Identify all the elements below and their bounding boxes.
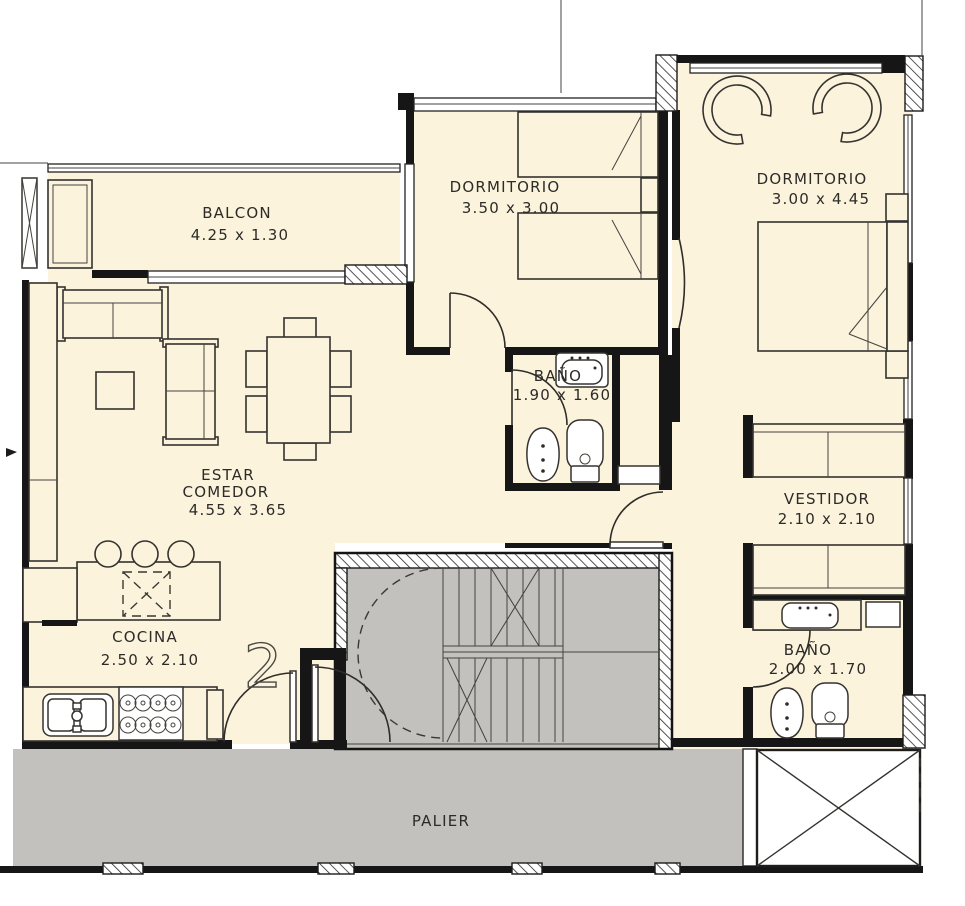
stair-wall-hatch-right — [659, 553, 672, 749]
hatch-palier-window-3 — [512, 863, 542, 874]
cocina-dims: 2.50 x 2.10 — [101, 651, 199, 669]
wall-dorm1-east — [658, 110, 668, 355]
estar-label-line1: ESTAR — [201, 466, 255, 484]
bath1-bidet — [527, 428, 559, 481]
bath2-toilet — [812, 683, 848, 738]
stairwell-area — [335, 553, 672, 749]
hatch-palier-window-1 — [103, 863, 143, 874]
hatch-balcony-end — [345, 265, 407, 284]
sofa-vertical — [163, 339, 218, 445]
vestidor-label: VESTIDOR — [784, 490, 870, 508]
dining-chair-top — [284, 318, 316, 338]
nightstand-dorm2-top — [886, 194, 908, 221]
bano1-dims: 1.90 x 1.60 — [513, 386, 611, 404]
bano2-label: BAÑO — [784, 640, 832, 659]
unit-number: 2 — [244, 632, 282, 702]
dining-chair-bottom — [284, 443, 316, 460]
dining-chair-right-2 — [330, 396, 351, 432]
wall-west — [22, 280, 29, 742]
dining-chair-left-2 — [246, 396, 267, 432]
nightstand-dorm2-bottom — [886, 351, 908, 378]
wall-bath2-west-b — [743, 687, 753, 745]
balcony-east-wall — [405, 164, 414, 282]
palier-label: PALIER — [412, 812, 470, 830]
wall-bath1-south — [505, 483, 620, 491]
bed-single-1 — [518, 112, 658, 177]
kitchen-stove — [119, 687, 183, 740]
dormitorio1-label: DORMITORIO — [450, 178, 561, 196]
wall-balcony-south-a — [92, 270, 148, 278]
kitchen-stools — [95, 541, 194, 567]
estar-dims: 4.55 x 3.65 — [189, 501, 287, 519]
wall-dorm2-north — [677, 55, 905, 63]
bed-single-2 — [518, 213, 658, 279]
palier-area — [13, 749, 743, 867]
wall-bath1-west-a — [505, 355, 513, 372]
hatch-column-top-center — [656, 55, 677, 111]
balcony-door-panel — [48, 180, 92, 268]
wall-dorm2-west-b — [672, 328, 680, 422]
wall-dorm1-south-a — [406, 347, 450, 355]
bath2-vanity — [753, 600, 861, 630]
vestidor-dims: 2.10 x 2.10 — [778, 510, 876, 528]
kitchen-peninsula — [77, 562, 220, 620]
wall-entry-nub-v — [300, 648, 312, 742]
bed-double — [758, 222, 908, 351]
duct-shelf — [618, 466, 660, 484]
wall-vestidor-west-a — [743, 415, 753, 478]
hatch-column-bottom-right — [903, 695, 925, 748]
bano2-dims: 2.00 x 1.70 — [769, 660, 867, 678]
nightstand-dorm1 — [641, 178, 658, 212]
dormitorio1-dims: 3.50 x 3.00 — [462, 199, 560, 217]
balcon-label: BALCON — [202, 204, 272, 222]
wall-dorm1-nw-corner — [398, 93, 414, 110]
bath1-toilet — [567, 420, 603, 482]
balcon-dims: 4.25 x 1.30 — [191, 226, 289, 244]
wall-corridor-hinge — [663, 543, 672, 549]
bano1-label: BAÑO — [534, 366, 582, 385]
stair-wall-hatch-left — [335, 568, 347, 660]
void-shaft — [757, 750, 920, 866]
dining-chair-left-1 — [246, 351, 267, 387]
floor-plan-drawing: BALCON 4.25 x 1.30 DORMITORIO 3.50 x 3.0… — [0, 0, 965, 906]
kitchen-end-cabinet — [207, 690, 223, 739]
dormitorio2-label: DORMITORIO — [757, 170, 868, 188]
floor-plan-canvas: BALCON 4.25 x 1.30 DORMITORIO 3.50 x 3.0… — [0, 0, 965, 906]
wall-vestidor-west-b — [743, 543, 753, 600]
estar-label-line2: COMEDOR — [183, 483, 270, 501]
wall-south-right-wing — [672, 738, 905, 747]
stair-wall-hatch-top — [335, 553, 672, 568]
kitchen-fridge — [23, 568, 77, 622]
closet-bottom — [753, 545, 905, 595]
dormitorio2-dims: 3.00 x 4.45 — [772, 190, 870, 208]
closet-top — [753, 424, 905, 477]
hatch-column-top-right — [905, 56, 923, 111]
hatch-palier-window-4 — [655, 863, 680, 874]
bath2-bidet — [771, 688, 803, 738]
kitchen-sink — [43, 694, 113, 736]
wall-bath2-west-a — [743, 600, 753, 628]
wall-bath1-west-b — [505, 425, 513, 490]
west-cabinet — [29, 283, 57, 561]
dining-chair-right-1 — [330, 351, 351, 387]
palier-right-wall — [743, 749, 757, 866]
kitchen-fridge-handle — [42, 620, 77, 626]
wall-corridor-south — [505, 543, 610, 548]
wall-dorm2-north-east — [882, 63, 905, 73]
sofa-horizontal — [57, 287, 168, 341]
dining-table — [267, 337, 330, 443]
wall-bath1-east — [612, 355, 620, 483]
wall-duct-east — [659, 355, 672, 490]
cocina-label: COCINA — [112, 628, 178, 646]
wall-dorm2-west-a — [672, 110, 680, 240]
hatch-palier-window-2 — [318, 863, 354, 874]
bath2-shelf — [866, 602, 900, 627]
side-table — [96, 372, 134, 409]
